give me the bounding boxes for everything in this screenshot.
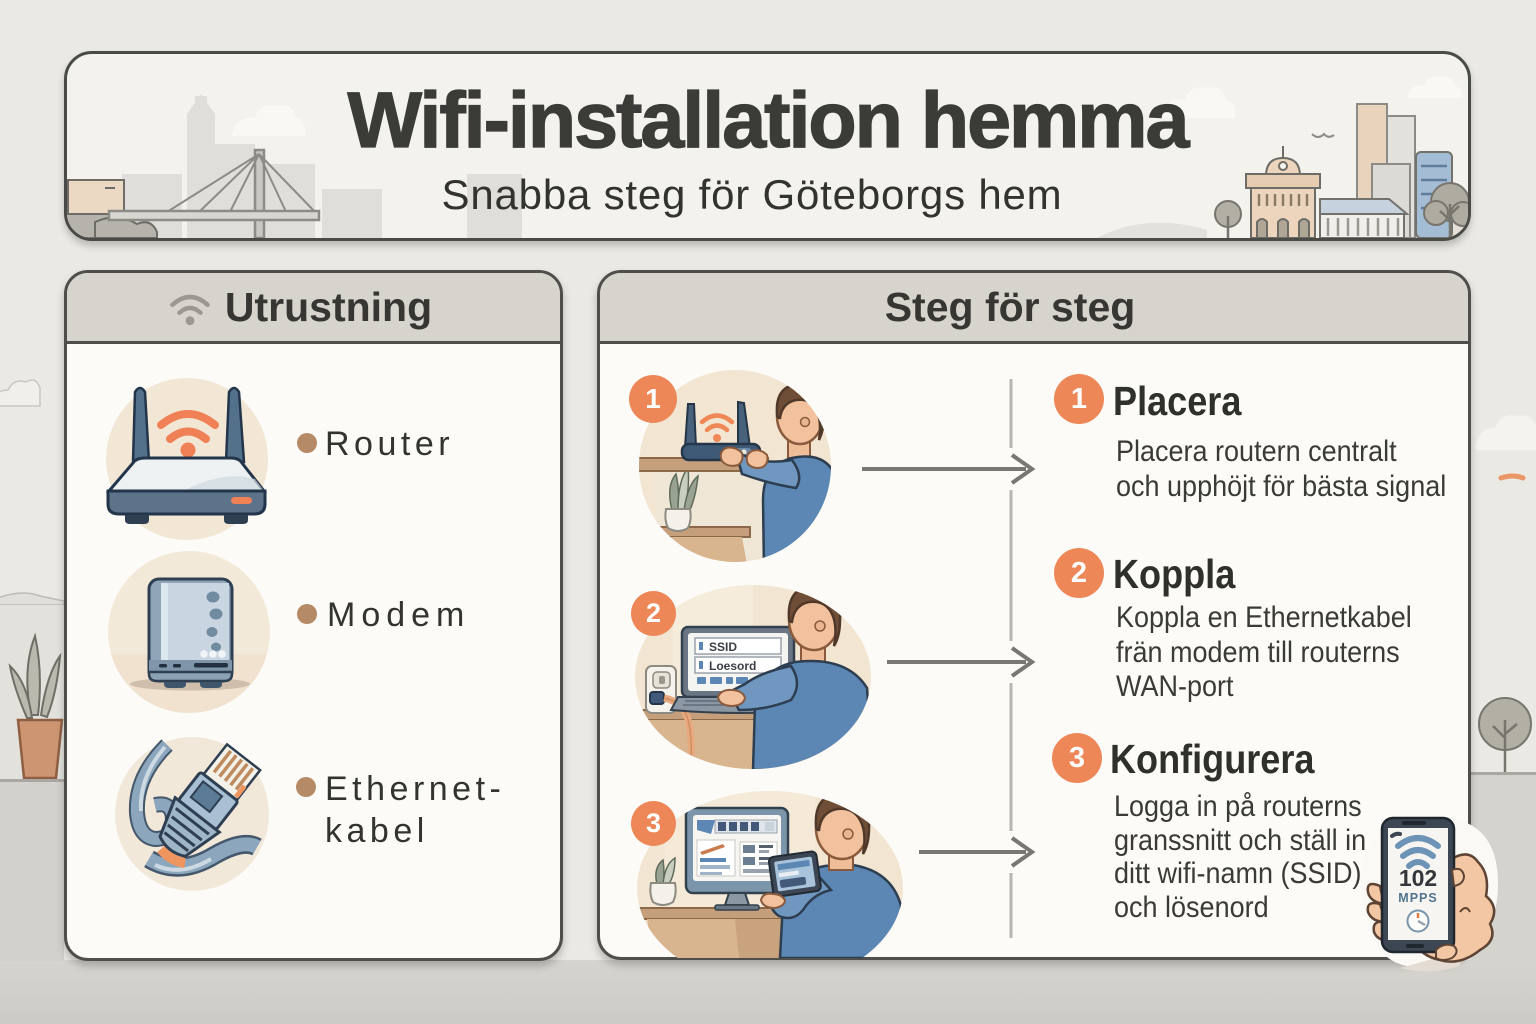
svg-text:102: 102 <box>1399 865 1437 891</box>
svg-text:SSID: SSID <box>709 640 737 654</box>
svg-text:MPPS: MPPS <box>1398 891 1437 905</box>
svg-text:Loesord: Loesord <box>709 659 756 673</box>
